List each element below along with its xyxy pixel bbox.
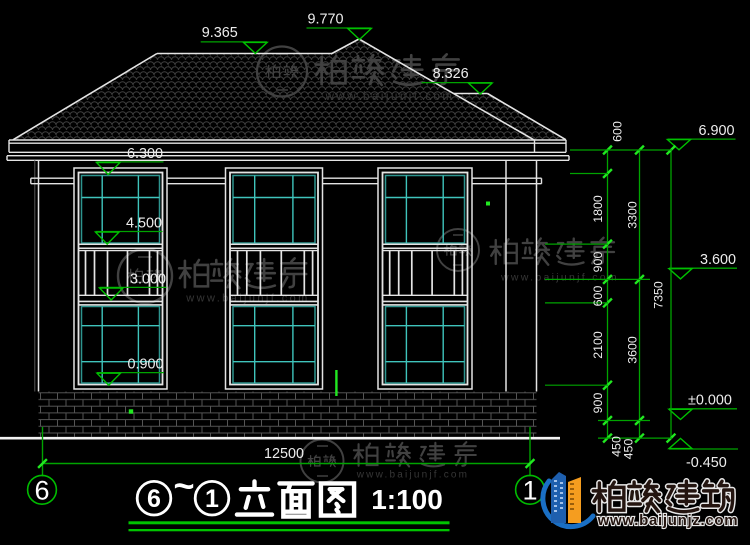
svg-text:9.365: 9.365 — [202, 25, 238, 41]
svg-text:600: 600 — [591, 286, 605, 307]
svg-text:8.326: 8.326 — [433, 66, 469, 82]
svg-text:www.baijunjf.com: www.baijunjf.com — [325, 91, 455, 103]
svg-text:12500: 12500 — [264, 446, 304, 462]
svg-text:1:100: 1:100 — [371, 484, 443, 515]
svg-text:1800: 1800 — [591, 195, 605, 223]
svg-text:6: 6 — [34, 476, 49, 506]
svg-text:450: 450 — [622, 439, 636, 460]
svg-text:900: 900 — [591, 393, 605, 414]
svg-text:4.500: 4.500 — [126, 216, 162, 232]
svg-text:7350: 7350 — [652, 281, 666, 309]
svg-text:2100: 2100 — [591, 331, 605, 359]
svg-text:3300: 3300 — [626, 201, 640, 229]
svg-text:900: 900 — [591, 252, 605, 273]
svg-text:6: 6 — [147, 485, 161, 513]
svg-text:3.600: 3.600 — [700, 252, 736, 268]
svg-text:6.900: 6.900 — [699, 123, 735, 139]
svg-text:1: 1 — [522, 476, 537, 506]
svg-text:-0.450: -0.450 — [686, 455, 727, 471]
svg-text:9.770: 9.770 — [308, 11, 344, 27]
svg-text:3.000: 3.000 — [130, 271, 166, 287]
svg-text:600: 600 — [611, 121, 625, 142]
svg-text:~: ~ — [173, 465, 194, 506]
svg-text:±0.000: ±0.000 — [688, 393, 732, 409]
svg-text:6.300: 6.300 — [127, 146, 163, 162]
svg-text:1: 1 — [205, 485, 219, 513]
svg-text:0.900: 0.900 — [128, 357, 164, 373]
svg-text:www.baijunjz.com: www.baijunjz.com — [597, 512, 739, 529]
svg-text:3600: 3600 — [626, 336, 640, 364]
svg-text:www.baijunjf.com: www.baijunjf.com — [356, 470, 469, 481]
